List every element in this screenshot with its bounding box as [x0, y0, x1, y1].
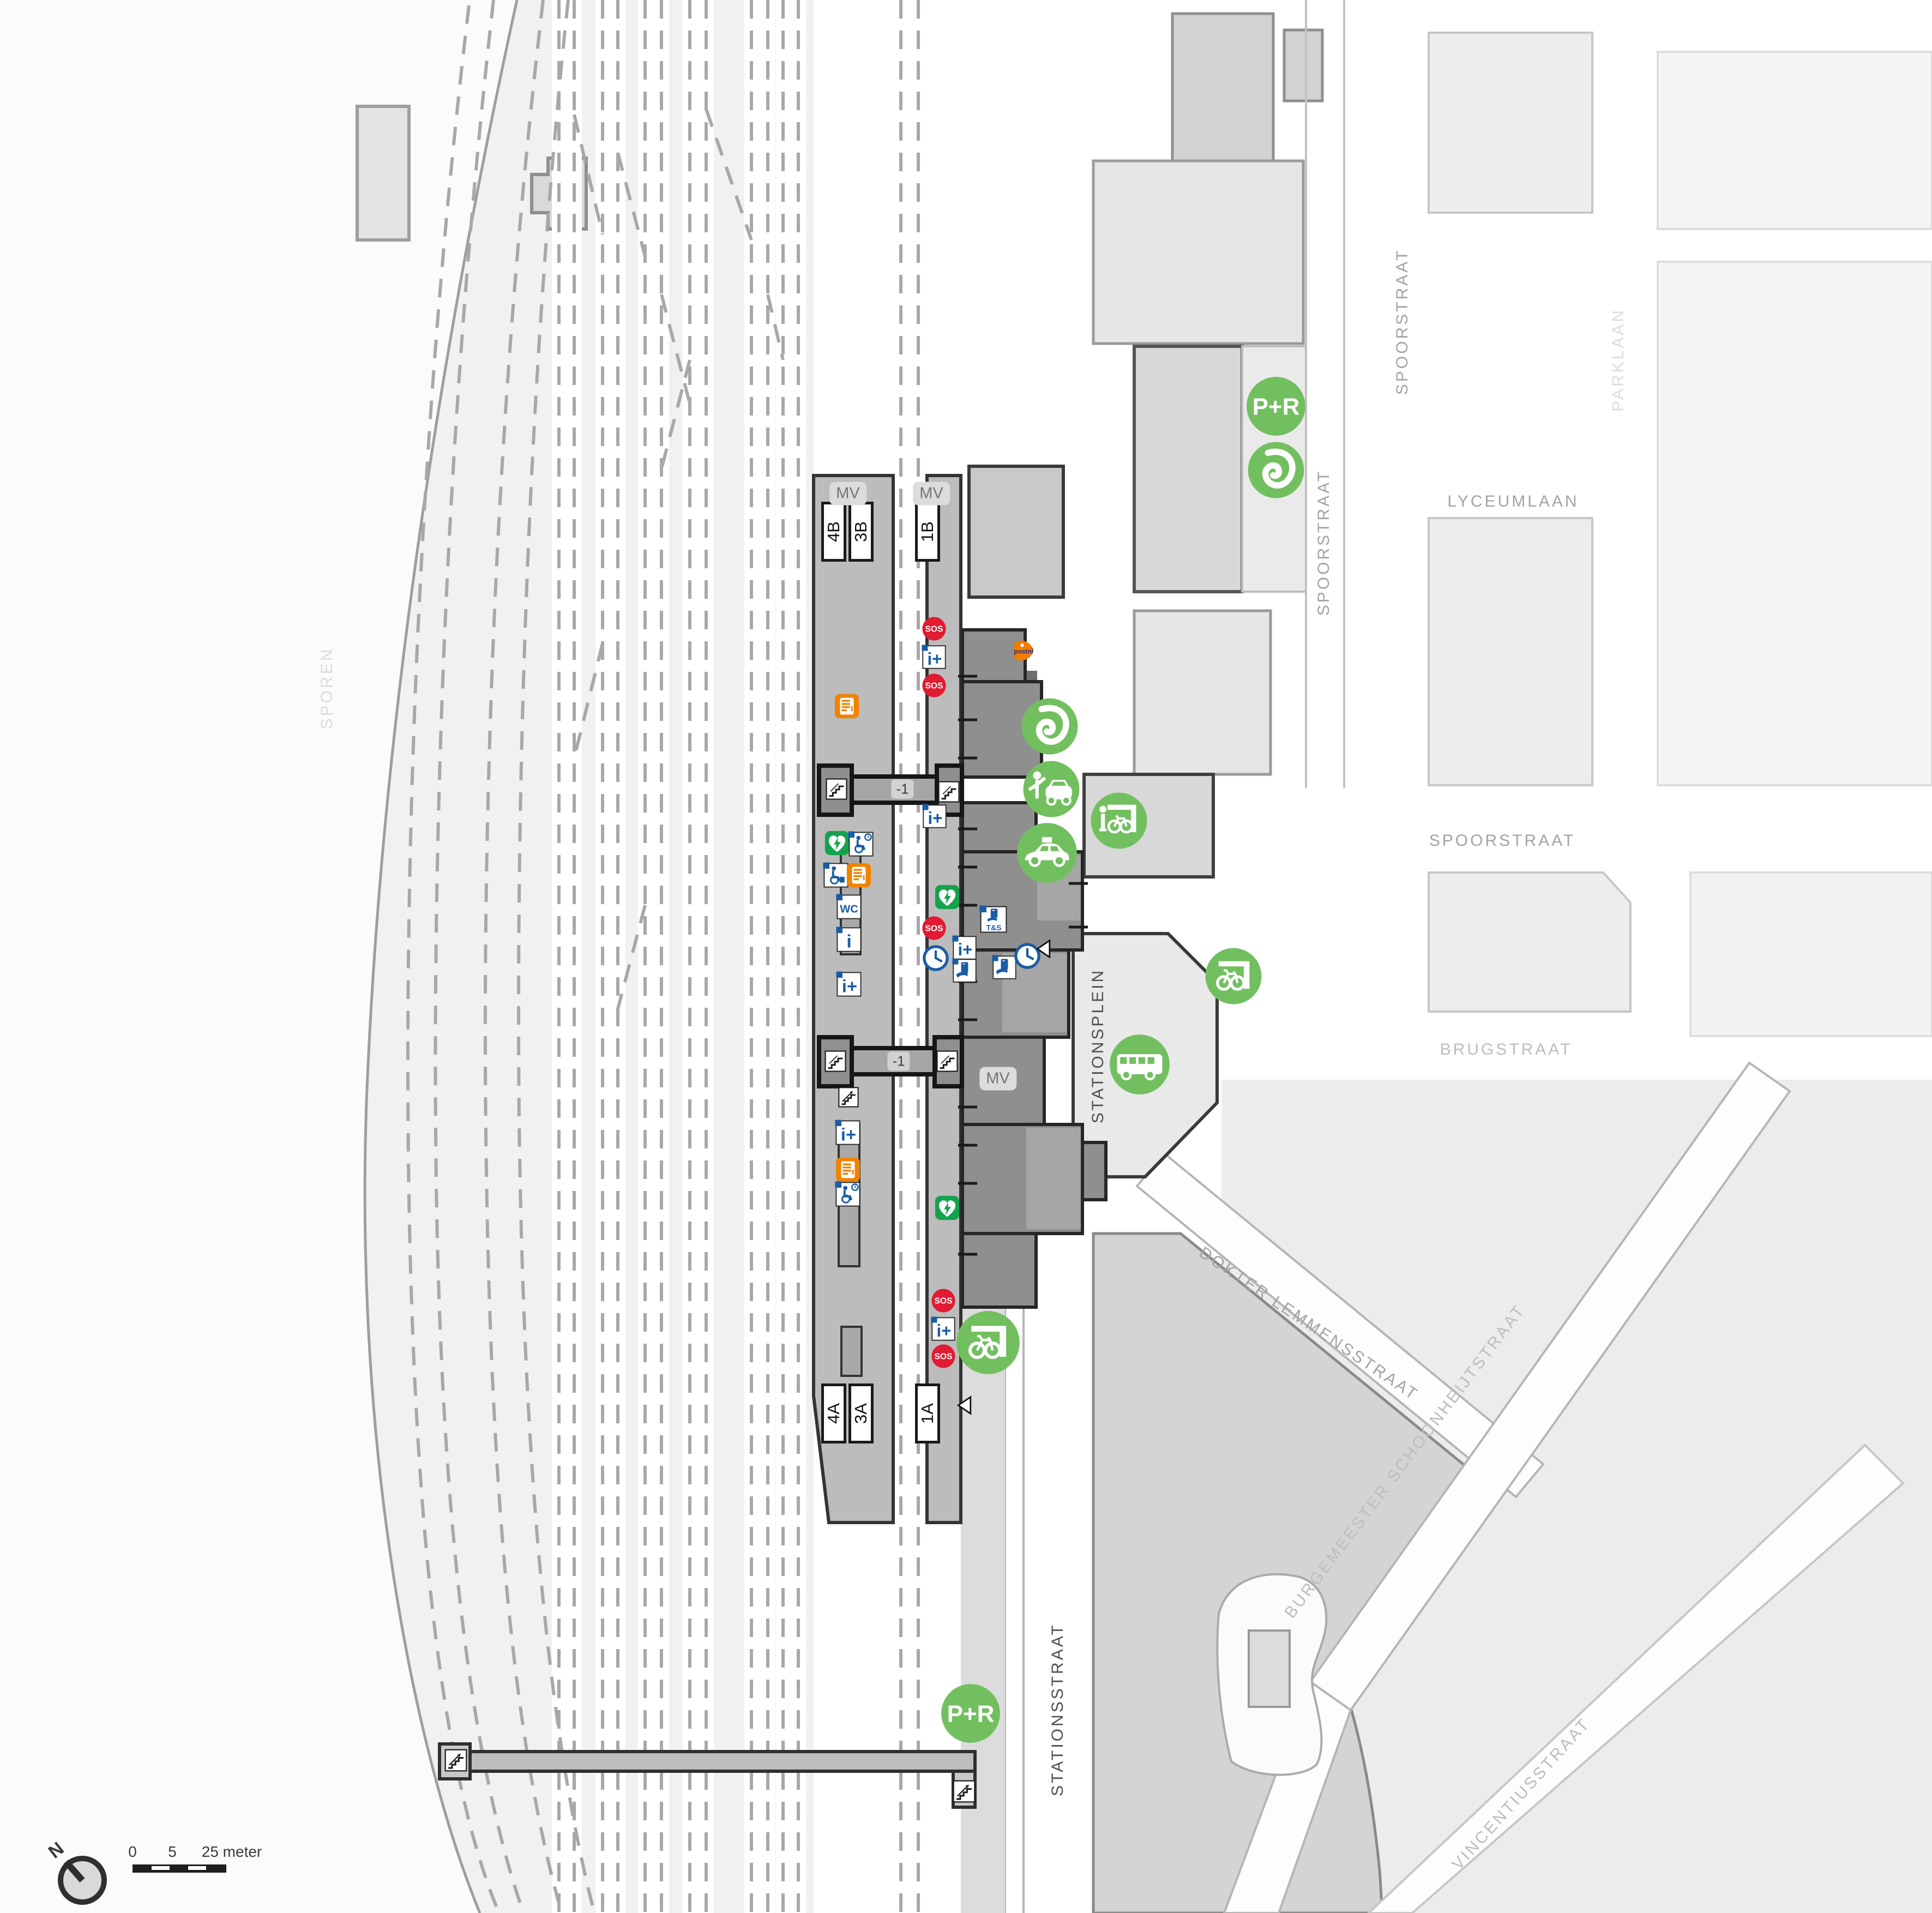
info-icon: i [836, 927, 862, 953]
info-plus-icon: i+ [952, 935, 977, 960]
svg-text:i+: i+ [928, 809, 942, 828]
info-plus-glyph: i+ [835, 1120, 861, 1146]
ticket-blue-icon [992, 955, 1017, 980]
ovfiets-glyph [1021, 698, 1079, 755]
aed-icon [934, 1195, 960, 1221]
sos-glyph: SOS [922, 673, 947, 698]
ticket-orange-icon [835, 1157, 861, 1183]
sos-icon: SOS [922, 616, 947, 641]
platform-sign: 4B [821, 502, 846, 562]
ticket-orange-glyph [846, 862, 872, 888]
info-plus-icon: i+ [922, 645, 947, 670]
platform-sign-label: 1A [918, 1403, 937, 1424]
scale-tick-0: 0 [128, 1843, 137, 1861]
platform-sign: 4A [821, 1383, 846, 1443]
postnl-glyph: postnl [1008, 636, 1038, 665]
zone-badge: MV [979, 1067, 1016, 1091]
sos-icon: SOS [922, 916, 947, 941]
scale-bar-segment [188, 1866, 206, 1870]
svg-text:SOS: SOS [925, 625, 943, 634]
assist-icon [835, 1181, 861, 1207]
stairs-glyph [838, 1086, 859, 1108]
pr-icon: P+R [941, 1683, 1001, 1743]
assist-glyph [848, 831, 874, 857]
info-plus-glyph: i+ [952, 935, 977, 960]
ticket-orange-glyph [834, 693, 860, 719]
scale-bar [133, 1864, 226, 1873]
stairs-icon [952, 1779, 976, 1803]
pr-icon: P+R [1246, 376, 1306, 436]
station-map-canvas: SPORENSPOORSTRAATSPOORSTRAATPARKLAANLYCE… [0, 0, 1932, 1913]
svg-text:T&S: T&S [986, 923, 1001, 932]
platform-sign: 1A [915, 1383, 940, 1443]
pr-glyph: P+R [1246, 376, 1306, 436]
triangle-glyph [955, 1394, 977, 1416]
platform-sign-label: 4B [824, 521, 844, 542]
svg-text:SOS: SOS [925, 682, 943, 691]
bus-glyph [1109, 1034, 1170, 1095]
kissride-glyph [1023, 761, 1080, 818]
escalator-glyph [824, 1050, 847, 1073]
svg-text:i+: i+ [936, 1321, 951, 1340]
info-plus-icon: i+ [835, 1120, 861, 1146]
escalator-glyph [936, 1050, 959, 1073]
stairs-icon [838, 1086, 859, 1108]
sos-icon: SOS [922, 673, 947, 698]
clock-icon [923, 945, 949, 971]
aed-glyph [934, 884, 960, 910]
info-plus-icon: i+ [836, 971, 862, 997]
bike-covered-glyph [1205, 948, 1262, 1005]
escalator-icon [936, 1050, 959, 1073]
escalator-glyph [825, 778, 848, 801]
escalator-icon [937, 780, 960, 803]
info-glyph: i [836, 927, 862, 953]
platform-sign-label: 4A [824, 1403, 844, 1424]
bike-guarded-icon [1091, 792, 1148, 850]
info-plus-glyph: i+ [922, 645, 947, 670]
ticket-orange-icon [846, 862, 872, 888]
ovfiets-icon [1248, 442, 1305, 499]
ticket-blue-icon [952, 958, 977, 983]
platform-sign-label: 3B [851, 521, 871, 542]
svg-text:SOS: SOS [925, 924, 943, 934]
svg-text:WC: WC [840, 904, 858, 916]
clock-glyph [923, 945, 949, 971]
ticket-orange-icon [834, 693, 860, 719]
bus-icon [1109, 1034, 1170, 1095]
info-plus-glyph: i+ [922, 804, 947, 829]
wheelchair-icon [823, 862, 849, 888]
triangle-icon [955, 1394, 977, 1416]
compass: N [51, 1846, 111, 1906]
sos-icon: SOS [931, 1288, 956, 1313]
svg-text:SOS: SOS [935, 1352, 953, 1362]
bike-guarded-glyph [1091, 792, 1148, 850]
svg-text:postnl: postnl [1014, 647, 1033, 655]
tands-icon: T&S [979, 905, 1008, 934]
triangle-glyph [1034, 938, 1056, 960]
wc-icon: WC [836, 894, 862, 920]
bike-covered-icon [1205, 948, 1262, 1005]
ovfiets-icon [1021, 698, 1079, 755]
stairs-glyph [444, 1748, 468, 1772]
taxi-icon [1016, 822, 1078, 883]
taxi-glyph [1016, 822, 1078, 883]
level-badge: -1 [887, 1052, 910, 1071]
info-plus-icon: i+ [922, 804, 947, 829]
svg-text:i+: i+ [958, 940, 972, 959]
zone-badge: MV [829, 482, 866, 506]
map-icons-layer: 4B3B1B4A3A1AMVMVMV-1-1SOSi+SOSpostnli+WC… [0, 0, 1932, 1913]
ticket-blue-glyph [992, 955, 1017, 980]
bike-covered-glyph [956, 1310, 1020, 1375]
scale-tick-25: 25 meter [202, 1843, 262, 1861]
svg-text:i: i [846, 931, 851, 952]
ticket-orange-glyph [835, 1157, 861, 1183]
aed-glyph [824, 830, 850, 856]
ticket-blue-glyph [952, 958, 977, 983]
escalator-icon [825, 778, 848, 801]
aed-icon [934, 884, 960, 910]
svg-text:P+R: P+R [1253, 393, 1300, 420]
aed-glyph [934, 1195, 960, 1221]
stairs-icon [444, 1748, 468, 1772]
sos-glyph: SOS [922, 916, 947, 941]
ovfiets-glyph [1248, 442, 1305, 499]
info-plus-icon: i+ [931, 1316, 956, 1341]
sos-icon: SOS [931, 1344, 956, 1369]
wc-glyph: WC [836, 894, 862, 920]
svg-text:SOS: SOS [935, 1297, 953, 1306]
kissride-icon [1023, 761, 1080, 818]
assist-glyph [835, 1181, 861, 1207]
platform-sign: 1B [915, 502, 940, 562]
sos-glyph: SOS [931, 1288, 956, 1313]
sos-glyph: SOS [931, 1344, 956, 1369]
bike-covered-icon [956, 1310, 1020, 1375]
platform-sign: 3B [848, 502, 874, 562]
wheelchair-glyph [823, 862, 849, 888]
scale-tick-5: 5 [168, 1843, 177, 1861]
zone-badge: MV [913, 482, 950, 506]
info-plus-glyph: i+ [836, 971, 862, 997]
svg-text:P+R: P+R [947, 1700, 995, 1727]
info-plus-glyph: i+ [931, 1316, 956, 1341]
escalator-icon [824, 1050, 847, 1073]
platform-sign-label: 3A [851, 1403, 871, 1424]
sos-glyph: SOS [922, 616, 947, 641]
assist-icon [848, 831, 874, 857]
platform-sign: 3A [848, 1383, 874, 1443]
svg-text:i+: i+ [927, 649, 942, 669]
escalator-glyph [937, 780, 960, 803]
triangle-icon [1034, 938, 1056, 960]
tands-glyph: T&S [979, 905, 1008, 934]
aed-icon [824, 830, 850, 856]
postnl-icon: postnl [1008, 636, 1038, 665]
platform-sign-label: 1B [918, 521, 937, 542]
level-badge: -1 [891, 780, 913, 799]
svg-text:i+: i+ [841, 1124, 856, 1144]
stairs-glyph [952, 1779, 976, 1803]
scale-bar-segment [152, 1866, 170, 1870]
svg-text:i+: i+ [842, 976, 857, 996]
pr-glyph: P+R [941, 1683, 1001, 1743]
